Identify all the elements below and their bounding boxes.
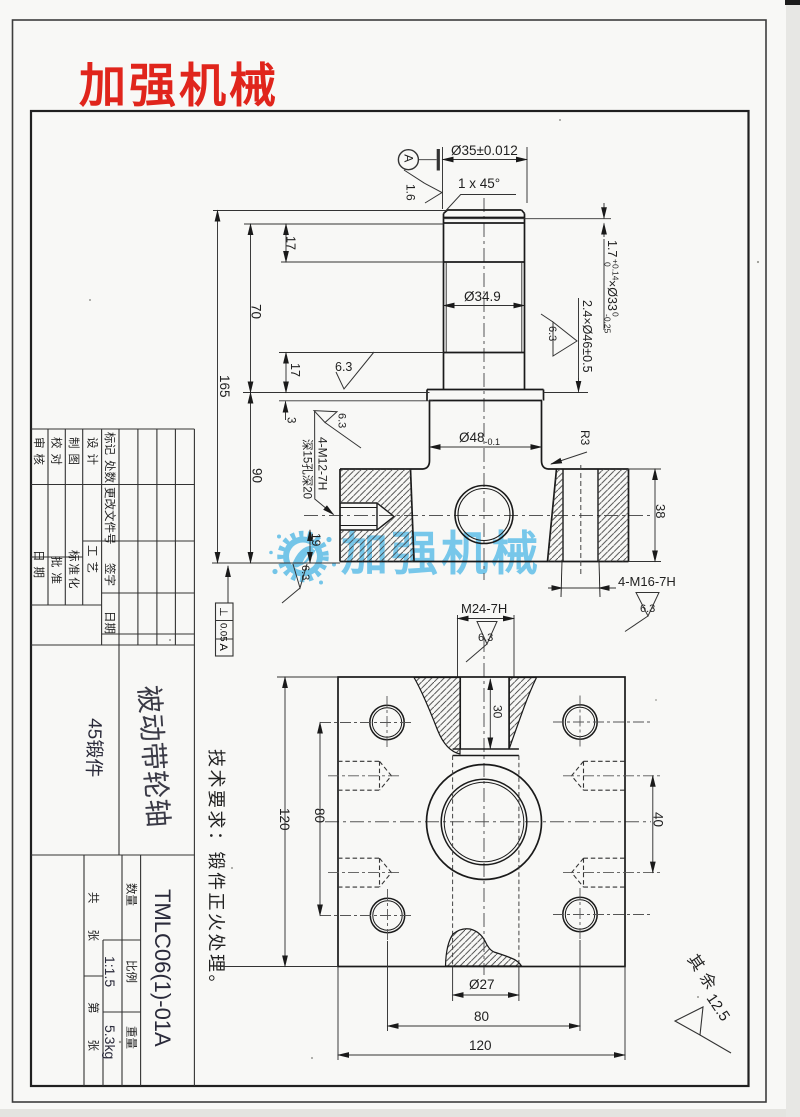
svg-text:165: 165 — [217, 375, 232, 398]
svg-text:19: 19 — [309, 533, 323, 547]
svg-text:M24-7H: M24-7H — [461, 601, 507, 616]
svg-text:6.3: 6.3 — [299, 565, 311, 580]
svg-text:Ø34.9: Ø34.9 — [464, 289, 501, 304]
svg-text:17: 17 — [284, 236, 298, 250]
svg-text:0: 0 — [603, 262, 613, 267]
svg-text:6.3: 6.3 — [336, 413, 348, 428]
svg-text:2.4×Ø46±0.5: 2.4×Ø46±0.5 — [580, 300, 594, 373]
svg-text:1.6: 1.6 — [404, 184, 418, 201]
svg-text:1.7: 1.7 — [605, 240, 619, 257]
svg-text:6.3: 6.3 — [335, 360, 352, 374]
svg-text:80: 80 — [312, 808, 327, 823]
svg-text:Ø35±0.012: Ø35±0.012 — [451, 143, 518, 158]
svg-text:120: 120 — [469, 1038, 492, 1053]
svg-text:4-M16-7H: 4-M16-7H — [618, 574, 676, 589]
svg-text:Ø48-0.1: Ø48-0.1 — [459, 430, 500, 447]
svg-text:-0.25: -0.25 — [603, 314, 613, 334]
svg-text:其余: 其余 — [684, 951, 724, 998]
svg-text:120: 120 — [277, 808, 292, 831]
svg-text:6.3: 6.3 — [478, 632, 493, 644]
svg-text:6.3: 6.3 — [640, 603, 655, 615]
svg-text:6.3: 6.3 — [546, 326, 558, 341]
svg-text:4-M12-7H: 4-M12-7H — [316, 437, 330, 490]
svg-text:17: 17 — [288, 363, 302, 377]
svg-text:40: 40 — [651, 812, 666, 827]
svg-text:×Ø33: ×Ø33 — [605, 280, 619, 311]
svg-text:70: 70 — [249, 304, 264, 319]
svg-text:A: A — [402, 154, 416, 162]
svg-text:1 x 45°: 1 x 45° — [458, 176, 500, 191]
svg-text:Ø27: Ø27 — [469, 977, 495, 992]
svg-text:38: 38 — [653, 504, 668, 518]
svg-text:80: 80 — [474, 1009, 489, 1024]
svg-text:深15孔深20: 深15孔深20 — [301, 439, 315, 499]
svg-text:3: 3 — [285, 417, 297, 423]
svg-text:90: 90 — [250, 468, 265, 483]
svg-text:30: 30 — [491, 705, 505, 719]
svg-text:R3: R3 — [578, 430, 592, 446]
